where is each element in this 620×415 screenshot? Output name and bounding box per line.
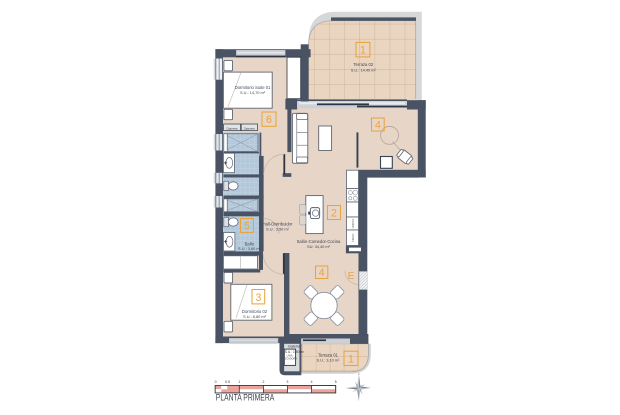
svg-text:HORNO: HORNO [351, 219, 355, 229]
svg-text:2: 2 [331, 208, 337, 220]
svg-text:1: 1 [360, 45, 366, 57]
svg-text:S.U.: 1,50 m²: S.U.: 1,50 m² [285, 350, 305, 354]
svg-text:SU: 34,40 m²: SU: 34,40 m² [307, 244, 331, 249]
svg-text:2: 2 [262, 380, 264, 384]
svg-text:4: 4 [311, 380, 313, 384]
svg-text:S.U.: 8,80 m²: S.U.: 8,80 m² [243, 314, 267, 319]
svg-text:0: 0 [215, 380, 217, 384]
svg-text:Galería: Galería [288, 344, 301, 348]
svg-text:S.U.: 14,70 m²: S.U.: 14,70 m² [240, 90, 266, 95]
svg-text:S.U.: 3,50 m²: S.U.: 3,50 m² [266, 227, 290, 232]
svg-text:4: 4 [375, 119, 381, 131]
svg-text:0.5: 0.5 [225, 380, 230, 384]
svg-text:PLANTA PRIMERA: PLANTA PRIMERA [216, 393, 275, 404]
svg-text:5: 5 [335, 380, 337, 384]
svg-text:FRIGO: FRIGO [351, 234, 355, 242]
svg-text:1: 1 [238, 380, 240, 384]
svg-text:S.U.: 14,40 m²: S.U.: 14,40 m² [351, 67, 377, 72]
svg-text:4: 4 [319, 267, 325, 279]
svg-text:E: E [348, 271, 355, 282]
svg-text:3: 3 [287, 380, 289, 384]
svg-text:1: 1 [348, 354, 354, 366]
svg-text:6: 6 [266, 114, 272, 126]
svg-text:SECADORA: SECADORA [283, 358, 297, 361]
svg-text:S.U.: 3,60 m²: S.U.: 3,60 m² [238, 246, 262, 251]
svg-text:3: 3 [255, 292, 261, 304]
svg-text:5: 5 [244, 221, 250, 233]
svg-text:Cajonera: Cajonera [226, 126, 237, 130]
svg-text:S.U.: 3,10 m²: S.U.: 3,10 m² [317, 358, 341, 363]
svg-text:Cajonera: Cajonera [244, 126, 255, 130]
svg-text:Terraza 02: Terraza 02 [353, 62, 373, 67]
